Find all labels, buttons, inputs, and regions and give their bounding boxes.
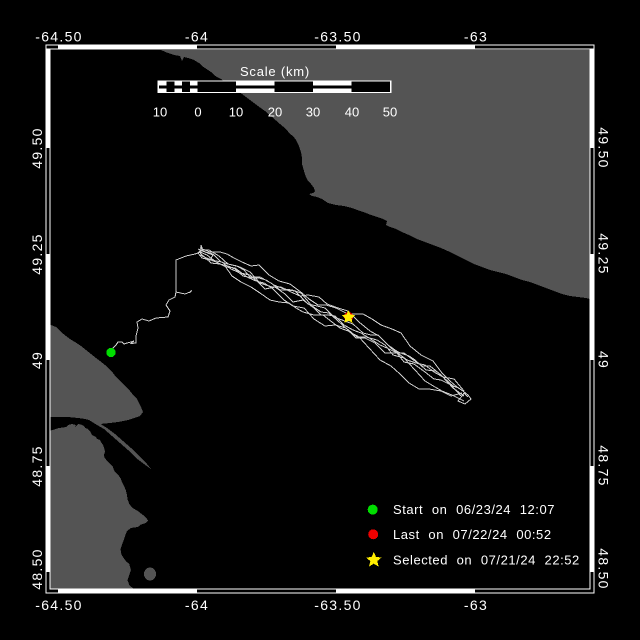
svg-text:-64: -64 <box>185 29 209 45</box>
svg-text:50: 50 <box>383 105 397 120</box>
svg-text:30: 30 <box>306 105 320 120</box>
svg-text:48.50: 48.50 <box>29 548 45 590</box>
svg-text:10: 10 <box>153 105 167 120</box>
svg-text:-63: -63 <box>464 29 488 45</box>
svg-text:48.50: 48.50 <box>596 548 612 590</box>
svg-text:-63.50: -63.50 <box>314 597 362 613</box>
svg-text:49.25: 49.25 <box>29 233 45 275</box>
svg-text:49.25: 49.25 <box>596 233 612 275</box>
svg-text:Start on 06/23/24 12:07: Start on 06/23/24 12:07 <box>393 502 555 517</box>
svg-text:49.50: 49.50 <box>29 127 45 169</box>
svg-text:Selected on 07/21/24 22:52: Selected on 07/21/24 22:52 <box>393 553 580 568</box>
svg-text:40: 40 <box>345 105 359 120</box>
svg-text:49.50: 49.50 <box>596 127 612 169</box>
svg-text:48.75: 48.75 <box>29 445 45 487</box>
svg-text:Last on 07/22/24 00:52: Last on 07/22/24 00:52 <box>393 527 552 542</box>
svg-text:-64.50: -64.50 <box>35 29 83 45</box>
svg-text:Scale (km): Scale (km) <box>240 64 310 79</box>
svg-text:-63.50: -63.50 <box>314 29 362 45</box>
svg-text:-64.50: -64.50 <box>35 597 83 613</box>
svg-text:0: 0 <box>194 105 201 120</box>
svg-text:10: 10 <box>229 105 243 120</box>
svg-text:48.75: 48.75 <box>596 445 612 487</box>
svg-text:20: 20 <box>268 105 282 120</box>
svg-text:49: 49 <box>29 351 45 369</box>
svg-text:-63: -63 <box>464 597 488 613</box>
svg-text:-64: -64 <box>185 597 209 613</box>
svg-text:49: 49 <box>596 351 612 369</box>
